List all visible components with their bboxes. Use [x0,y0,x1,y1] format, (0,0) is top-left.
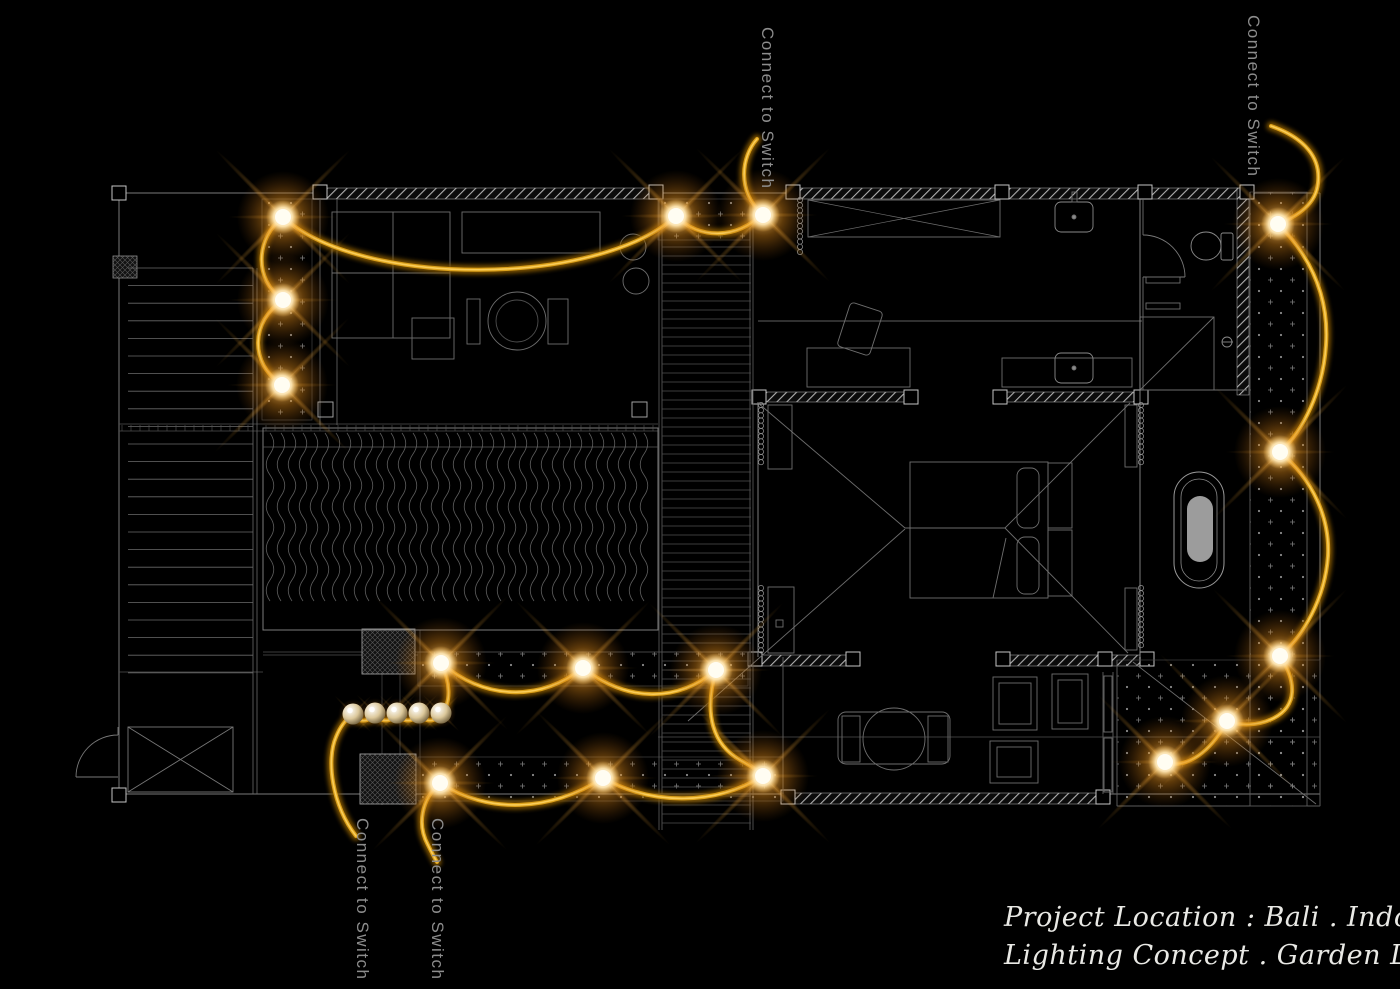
dressing-room [758,192,1185,387]
switch-label: Connect to Switch [427,818,447,981]
light-bulb [694,707,833,846]
hatched-walls [320,188,1249,804]
small-pearl-bulb [421,693,460,732]
garden-string-bottom [331,594,832,862]
entry-door [76,727,233,792]
pool-water-waves [266,433,648,601]
round-table [863,708,925,770]
living-pavilion [318,199,649,425]
lighting-concept-line: Lighting Concept . Garden Light [1004,937,1400,975]
switch-label: Connect to Switch [1243,15,1263,178]
garden-string-top [213,139,833,454]
bed [910,462,1048,598]
light-bulb [647,601,786,740]
pool [263,428,658,630]
toilet-icon [1191,232,1221,260]
lounge [783,657,1117,806]
floor-plan-drawing [0,0,1400,989]
lighting-plan-canvas: Connect to Switch Connect to Switch Conn… [0,0,1400,989]
column-dark [113,256,137,278]
light-bulb [534,709,673,848]
bathroom [1140,199,1247,390]
light-bulb [514,599,653,738]
stairs [128,268,253,673]
light-bulb [607,147,746,286]
switch-label: Connect to Switch [352,818,372,981]
string-lights-layer [213,126,1350,862]
project-location-line: Project Location : Bali . Indonesia [1004,899,1400,937]
project-title-block: Project Location : Bali . Indonesia Ligh… [1004,899,1400,975]
switch-label: Connect to Switch [757,27,777,190]
